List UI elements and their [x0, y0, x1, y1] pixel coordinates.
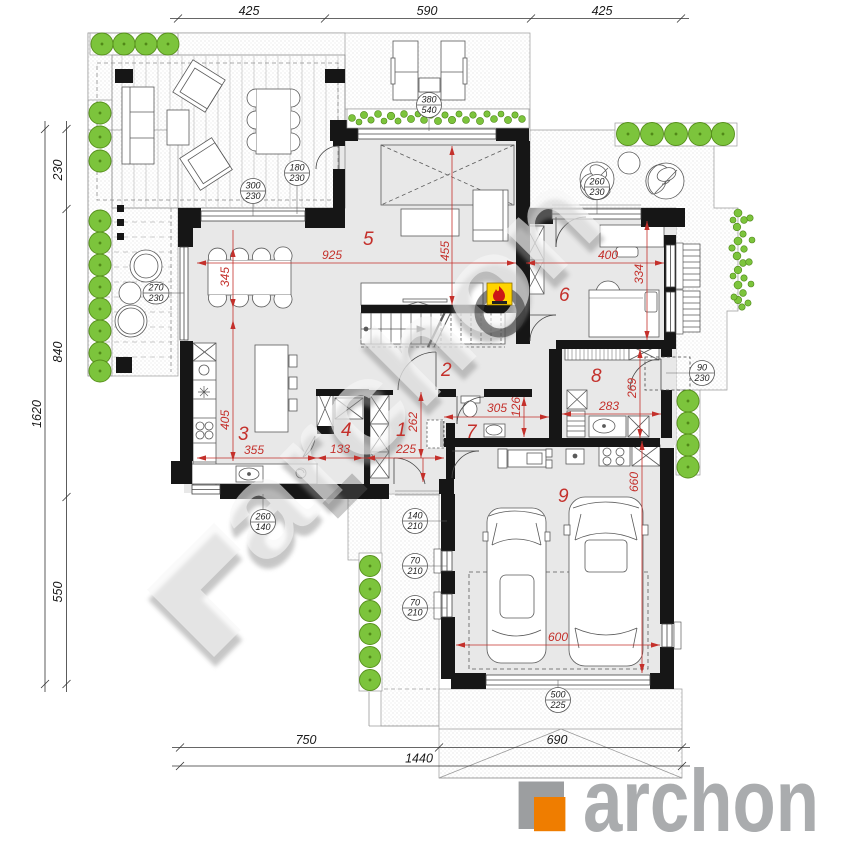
- svg-text:283: 283: [598, 399, 619, 413]
- svg-text:126: 126: [509, 397, 523, 417]
- svg-text:590: 590: [417, 4, 438, 18]
- svg-text:70: 70: [410, 556, 420, 566]
- svg-text:269: 269: [625, 378, 639, 399]
- svg-text:1: 1: [396, 420, 407, 441]
- svg-text:archon: archon: [583, 751, 819, 850]
- svg-text:6: 6: [559, 285, 570, 306]
- svg-text:455: 455: [438, 241, 452, 261]
- svg-text:660: 660: [627, 472, 641, 492]
- svg-text:140: 140: [407, 511, 422, 521]
- svg-text:210: 210: [406, 566, 422, 576]
- svg-text:1620: 1620: [30, 400, 44, 428]
- svg-text:540: 540: [421, 105, 436, 115]
- svg-text:334: 334: [632, 264, 646, 284]
- svg-text:5: 5: [363, 229, 374, 250]
- svg-text:90: 90: [697, 363, 707, 373]
- svg-text:750: 750: [296, 733, 317, 747]
- svg-text:550: 550: [51, 582, 65, 603]
- svg-text:262: 262: [406, 412, 420, 433]
- svg-text:230: 230: [693, 373, 709, 383]
- svg-text:70: 70: [410, 598, 420, 608]
- svg-text:400: 400: [598, 248, 618, 262]
- svg-text:2: 2: [440, 360, 452, 381]
- svg-text:133: 133: [330, 442, 350, 456]
- svg-text:210: 210: [406, 521, 422, 531]
- svg-text:345: 345: [218, 267, 232, 287]
- svg-text:210: 210: [406, 608, 422, 618]
- svg-text:260: 260: [254, 512, 270, 522]
- svg-text:260: 260: [588, 177, 604, 187]
- svg-text:8: 8: [591, 366, 602, 387]
- svg-text:4: 4: [341, 420, 352, 441]
- svg-text:225: 225: [549, 700, 566, 710]
- svg-text:230: 230: [288, 173, 304, 183]
- svg-text:230: 230: [51, 160, 65, 182]
- svg-text:140: 140: [255, 522, 270, 532]
- svg-text:225: 225: [395, 442, 416, 456]
- svg-text:425: 425: [239, 4, 260, 18]
- svg-text:690: 690: [547, 733, 568, 747]
- svg-text:425: 425: [592, 4, 613, 18]
- svg-text:600: 600: [548, 630, 568, 644]
- svg-text:925: 925: [322, 248, 342, 262]
- svg-text:500: 500: [550, 690, 565, 700]
- svg-text:9: 9: [558, 486, 569, 507]
- svg-text:180: 180: [289, 163, 304, 173]
- svg-text:840: 840: [51, 342, 65, 363]
- svg-text:380: 380: [421, 95, 436, 105]
- svg-text:405: 405: [218, 410, 232, 430]
- svg-text:3: 3: [238, 424, 249, 445]
- svg-text:230: 230: [147, 293, 163, 303]
- svg-text:270: 270: [147, 283, 163, 293]
- svg-text:1440: 1440: [405, 752, 433, 766]
- svg-text:355: 355: [244, 443, 264, 457]
- svg-text:7: 7: [466, 422, 478, 443]
- svg-text:300: 300: [245, 181, 260, 191]
- svg-text:305: 305: [487, 401, 507, 415]
- svg-text:230: 230: [588, 187, 604, 197]
- svg-text:230: 230: [244, 191, 260, 201]
